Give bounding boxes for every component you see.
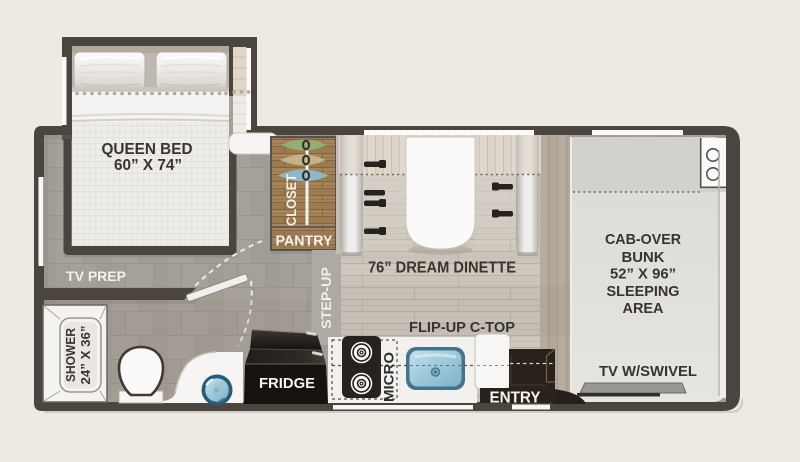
svg-text:60” X 74”: 60” X 74” [114, 157, 182, 174]
svg-text:CLOSET: CLOSET [283, 174, 299, 226]
svg-text:SHOWER: SHOWER [63, 327, 78, 382]
svg-text:MICRO: MICRO [381, 352, 397, 402]
svg-text:BUNK: BUNK [622, 249, 665, 266]
svg-text:CAB-OVER: CAB-OVER [605, 231, 681, 248]
svg-text:76” DREAM DINETTE: 76” DREAM DINETTE [368, 260, 516, 277]
svg-text:ENTRY: ENTRY [490, 390, 542, 407]
svg-text:TV PREP: TV PREP [66, 269, 126, 284]
svg-text:SLEEPING: SLEEPING [607, 283, 680, 300]
svg-text:FRIDGE: FRIDGE [259, 375, 315, 392]
svg-text:QUEEN BED: QUEEN BED [102, 141, 193, 158]
svg-text:STEP-UP: STEP-UP [319, 267, 334, 329]
svg-text:PANTRY: PANTRY [276, 233, 333, 250]
svg-text:AREA: AREA [623, 300, 664, 317]
svg-text:52” X 96”: 52” X 96” [610, 266, 676, 283]
svg-text:TV W/SWIVEL: TV W/SWIVEL [599, 363, 697, 380]
svg-text:24” X 36”: 24” X 36” [78, 326, 93, 385]
